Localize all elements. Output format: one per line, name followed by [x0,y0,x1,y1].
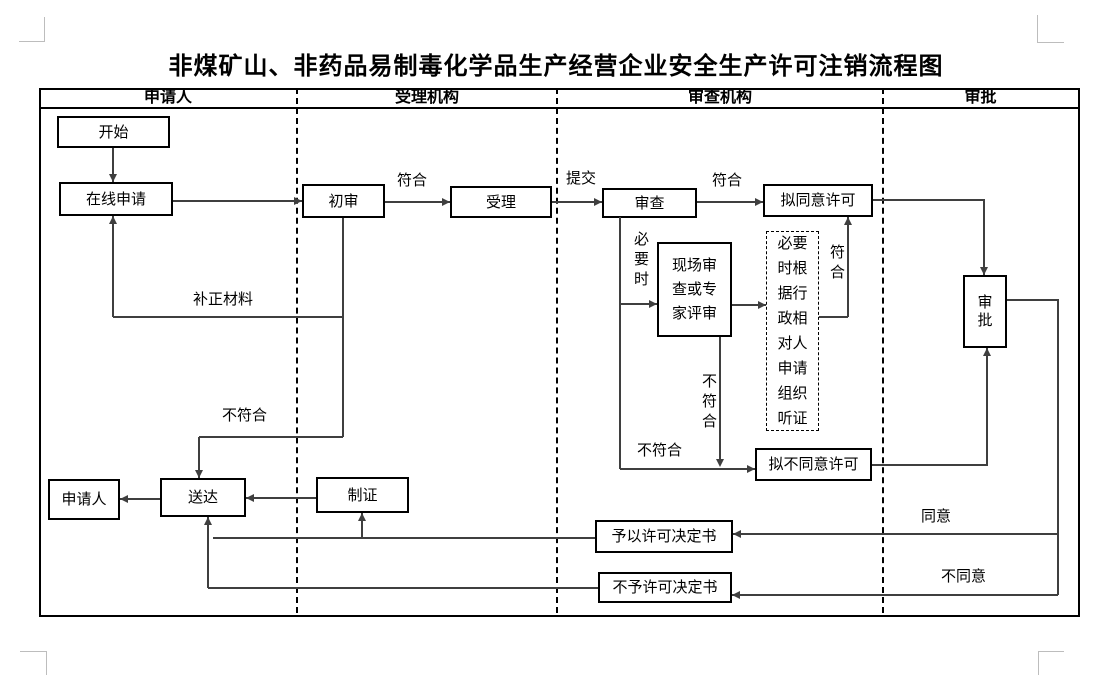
arrow-into-certificate-bottom [358,513,366,521]
edge-proposed-approval-to-approval-v [983,199,985,275]
node-preliminary-review: 初审 [302,184,385,218]
edge-hearing-conform-v [847,217,849,317]
arrow-into-proposed-denial [747,465,755,473]
edge-approval-out-h [1007,299,1058,301]
label-conform-preliminary: 符合 [397,172,427,189]
label-conform-hearing: 符合 [829,243,846,283]
label-when-necessary: 必要时 [633,230,650,290]
node-start: 开始 [57,116,170,148]
lane-header-applicant: 申请人 [39,89,297,107]
edge-agree-h [733,533,1058,535]
edge-review-notconform-h [620,468,755,470]
lane-header-acceptor: 受理机构 [297,89,557,107]
flowchart-page: 非煤矿山、非药品易制毒化学品生产经营企业安全生产许可注销流程图 申请人 受理机构… [0,0,1112,675]
node-accept: 受理 [450,186,552,218]
edge-preliminary-to-accept [385,201,450,203]
edge-disagree-h [732,594,1058,596]
node-proposed-denial: 拟不同意许可 [755,448,872,481]
node-grant-decision: 予以许可决定书 [595,520,733,553]
edge-proposed-denial-to-approval-v [986,348,988,465]
arrow-site-notconform [716,459,724,467]
node-site-or-expert-review: 现场审查或专家评审 [657,242,732,337]
node-approval: 审批 [963,275,1007,348]
arrow-into-approval-top [980,267,988,275]
corner-mark-top-left [19,17,45,42]
node-make-certificate: 制证 [316,477,409,513]
corner-mark-bottom-right [1038,651,1064,675]
edge-site-notconform-v [719,337,721,464]
arrow-into-approval-bottom [983,348,991,356]
lane-header-approver: 审批 [883,89,1078,107]
lane-divider-2 [556,88,558,613]
corner-mark-bottom-left [20,651,47,675]
label-conform-review: 符合 [712,172,742,189]
edge-grant-to-certificate-h [213,537,595,539]
label-not-conform-preliminary: 不符合 [222,407,267,424]
edge-supplement-v [112,216,114,317]
arrow-into-proposed-approval [755,198,763,206]
edge-preliminary-notconform-h [199,436,343,438]
node-approval-label: 审批 [977,294,993,330]
edge-review-to-proposed-approval [697,201,763,203]
edge-hearing-conform-h [819,316,848,318]
label-submit: 提交 [566,170,596,187]
arrow-into-deliver-right [246,494,254,502]
edge-denial-to-deliver-h [208,587,598,589]
arrow-into-online-bottom [109,216,117,224]
node-hearing-note-label: 必要时根据行政相对人申请组织听证 [774,231,812,431]
arrow-when-necessary [649,300,657,308]
edge-approval-rail-v [1057,299,1059,595]
edge-certificate-to-deliver [246,497,316,499]
arrow-into-proposed-approval-bottom [844,217,852,225]
page-title: 非煤矿山、非药品易制毒化学品生产经营企业安全生产许可注销流程图 [0,46,1112,81]
node-review: 审查 [602,188,697,218]
node-hearing-note: 必要时根据行政相对人申请组织听证 [766,231,819,431]
label-not-conform-site: 不符合 [701,372,718,432]
label-not-conform-review: 不符合 [637,442,682,459]
lane-header-separator [39,107,1078,109]
lane-divider-1 [296,88,298,613]
edge-proposed-approval-to-approval-h [873,199,985,201]
arrow-into-online-apply [109,174,117,182]
edge-proposed-denial-to-approval-h [872,464,988,466]
label-supplement-materials: 补正材料 [193,291,253,308]
lane-header-reviewer: 审查机构 [557,89,883,107]
edge-review-down-v [619,217,621,469]
node-online-apply: 在线申请 [59,182,173,216]
arrow-into-denial-decision [732,591,740,599]
edge-online-to-preliminary [173,200,302,202]
arrow-into-accept [442,198,450,206]
arrow-into-grant-decision [733,530,741,538]
node-applicant-end: 申请人 [48,479,120,520]
arrow-into-hearing [758,301,766,309]
edge-denial-to-deliver-v [207,517,209,588]
label-agree: 同意 [921,508,951,525]
arrow-into-review [594,198,602,206]
edge-supplement-h [113,316,343,318]
edge-preliminary-down-v [342,218,344,437]
arrow-into-deliver-bottom [204,517,212,525]
arrow-into-preliminary [294,197,302,205]
node-deliver: 送达 [160,478,246,517]
node-site-or-expert-review-label: 现场审查或专家评审 [669,254,721,326]
node-proposed-approval: 拟同意许可 [763,184,873,217]
label-disagree: 不同意 [941,568,986,585]
node-denial-decision: 不予许可决定书 [598,572,732,603]
arrow-into-deliver-top [195,470,203,478]
arrow-into-applicant-end [120,495,128,503]
corner-mark-top-right [1037,15,1064,43]
